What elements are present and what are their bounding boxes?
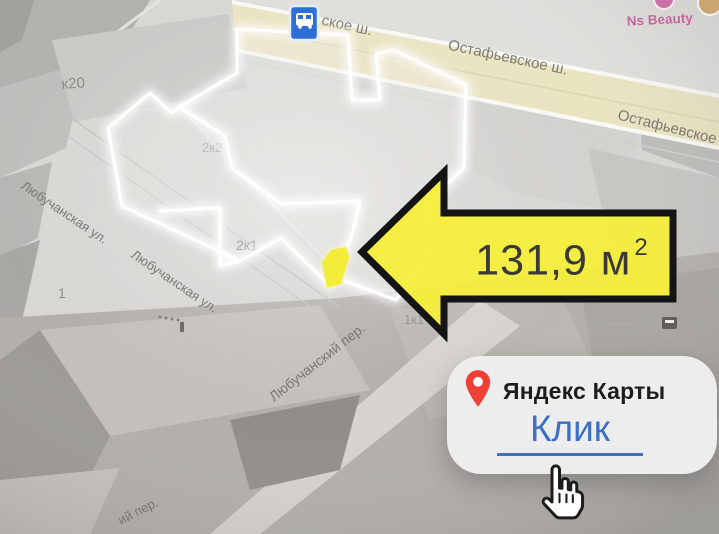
area-arrow-label: 131,9 м2 [448,223,676,283]
area-superscript: 2 [634,234,648,261]
building-label-k20: к20 [61,74,85,93]
bus-stop-icon [290,6,318,40]
gate-icon [662,317,677,329]
pointer-cursor-icon [534,461,588,521]
map-pin-icon [463,369,493,408]
map-canvas: ское ш. Остафьевское ш. Остафьевское ш. … [0,0,719,534]
card-title: Яндекс Карты [503,378,665,405]
yandex-maps-card[interactable]: Яндекс Карты Клик [447,356,717,474]
area-value: 131,9 м [475,236,631,284]
card-link[interactable]: Клик [497,408,643,456]
building-label-1: 1 [58,285,66,301]
